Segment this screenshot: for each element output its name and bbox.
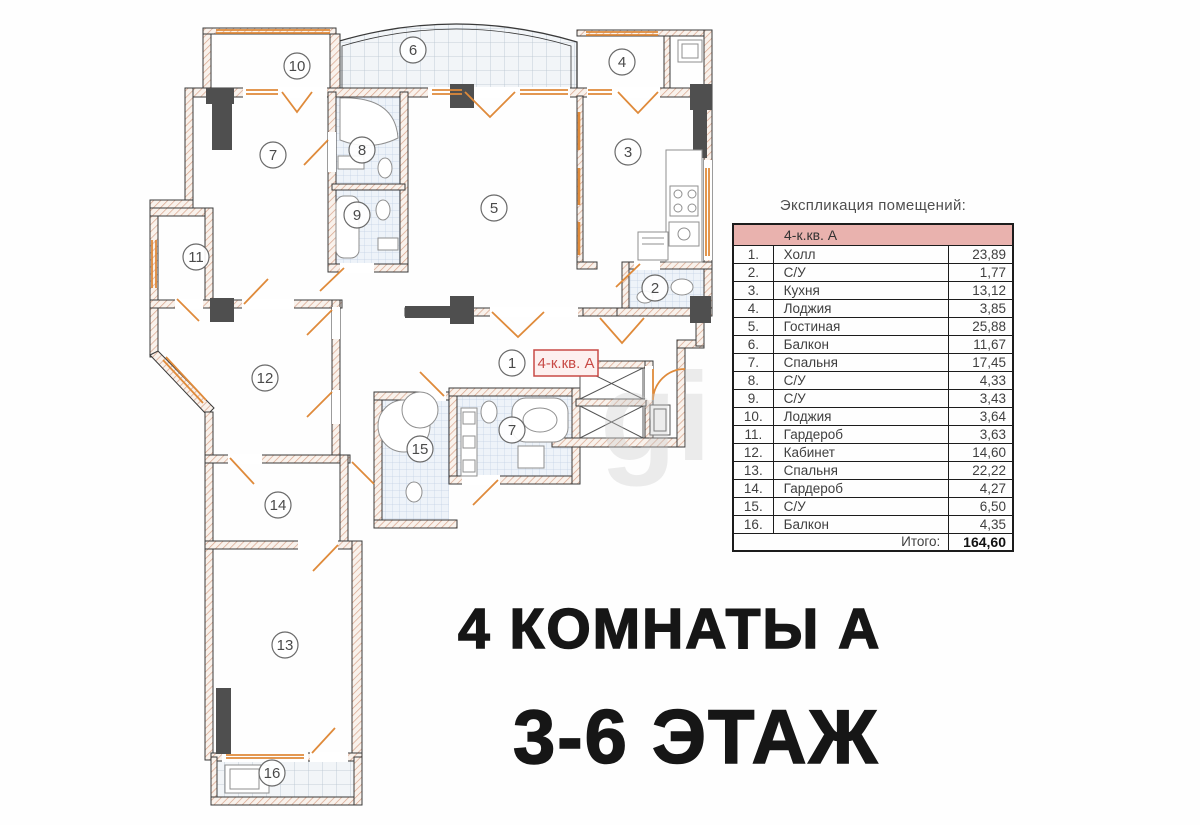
- table-row: 8. С/У 4,33: [733, 371, 1013, 389]
- row-number: 9.: [733, 389, 773, 407]
- floorplan-page: gi 6 10 4 7 8 9 5 3 2 11 12 1 7 15 14 13…: [0, 0, 1200, 825]
- row-area: 25,88: [949, 317, 1013, 335]
- svg-text:12: 12: [257, 370, 274, 387]
- table-row: 16. Балкон 4,35: [733, 515, 1013, 533]
- room-marker-7-bath: 7: [499, 417, 525, 443]
- room-marker-3: 3: [615, 139, 641, 165]
- table-row: 3. Кухня 13,12: [733, 281, 1013, 299]
- row-room-name: Гардероб: [773, 425, 949, 443]
- row-room-name: Балкон: [773, 335, 949, 353]
- svg-text:6: 6: [409, 42, 417, 59]
- table-row: 2. С/У 1,77: [733, 263, 1013, 281]
- row-room-name: Спальня: [773, 353, 949, 371]
- table-row: 7. Спальня 17,45: [733, 353, 1013, 371]
- row-area: 3,64: [949, 407, 1013, 425]
- svg-text:2: 2: [651, 280, 659, 297]
- svg-text:7: 7: [269, 147, 277, 164]
- room-marker-14: 14: [265, 492, 291, 518]
- table-row: 1. Холл 23,89: [733, 245, 1013, 263]
- svg-text:14: 14: [270, 497, 287, 514]
- room-marker-10: 10: [284, 53, 310, 79]
- explication-panel: Экспликация помещений: 4-к.кв. А 1. Холл…: [732, 197, 1014, 552]
- row-room-name: С/У: [773, 497, 949, 515]
- row-number: 11.: [733, 425, 773, 443]
- svg-text:3: 3: [624, 144, 632, 161]
- explication-table: 4-к.кв. А 1. Холл 23,89 2. С/У 1,77 3. К…: [732, 223, 1014, 552]
- row-area: 17,45: [949, 353, 1013, 371]
- row-room-name: С/У: [773, 371, 949, 389]
- total-label: Итого:: [733, 533, 949, 551]
- row-number: 16.: [733, 515, 773, 533]
- room-marker-11: 11: [183, 244, 209, 270]
- row-room-name: Спальня: [773, 461, 949, 479]
- explication-title: Экспликация помещений:: [732, 197, 1014, 214]
- table-header-row: 4-к.кв. А: [733, 224, 1013, 245]
- total-value: 164,60: [949, 533, 1013, 551]
- row-area: 23,89: [949, 245, 1013, 263]
- row-number: 8.: [733, 371, 773, 389]
- explication-body: 1. Холл 23,89 2. С/У 1,77 3. Кухня 13,12…: [733, 245, 1013, 533]
- room-marker-4: 4: [609, 49, 635, 75]
- apartment-label: 4-к.кв. А: [534, 350, 598, 376]
- svg-text:10: 10: [289, 58, 306, 75]
- row-area: 3,63: [949, 425, 1013, 443]
- row-room-name: Холл: [773, 245, 949, 263]
- row-room-name: Кухня: [773, 281, 949, 299]
- row-area: 6,50: [949, 497, 1013, 515]
- row-room-name: Лоджия: [773, 407, 949, 425]
- row-room-name: Лоджия: [773, 299, 949, 317]
- table-row: 12. Кабинет 14,60: [733, 443, 1013, 461]
- svg-text:1: 1: [508, 355, 516, 372]
- watermark-text: gi: [600, 348, 711, 487]
- row-number: 12.: [733, 443, 773, 461]
- room-marker-12: 12: [252, 365, 278, 391]
- row-area: 14,60: [949, 443, 1013, 461]
- room-marker-2: 2: [642, 275, 668, 301]
- svg-text:4: 4: [618, 54, 626, 71]
- row-area: 22,22: [949, 461, 1013, 479]
- row-number: 1.: [733, 245, 773, 263]
- room-marker-1: 1: [499, 350, 525, 376]
- row-room-name: С/У: [773, 389, 949, 407]
- room-marker-5: 5: [481, 195, 507, 221]
- row-area: 3,43: [949, 389, 1013, 407]
- row-room-name: Гардероб: [773, 479, 949, 497]
- row-area: 11,67: [949, 335, 1013, 353]
- table-row: 14. Гардероб 4,27: [733, 479, 1013, 497]
- row-room-name: С/У: [773, 263, 949, 281]
- caption-rooms: 4 КОМНАТЫ А: [458, 596, 881, 662]
- row-number: 13.: [733, 461, 773, 479]
- table-row: 6. Балкон 11,67: [733, 335, 1013, 353]
- room-marker-13: 13: [272, 632, 298, 658]
- table-row: 9. С/У 3,43: [733, 389, 1013, 407]
- utility-fixture: [678, 40, 702, 62]
- svg-text:8: 8: [358, 142, 366, 159]
- row-room-name: Балкон: [773, 515, 949, 533]
- row-number: 15.: [733, 497, 773, 515]
- room-marker-8: 8: [349, 137, 375, 163]
- row-number: 6.: [733, 335, 773, 353]
- row-room-name: Кабинет: [773, 443, 949, 461]
- svg-text:11: 11: [188, 249, 204, 266]
- room-marker-16: 16: [259, 760, 285, 786]
- room-marker-7: 7: [260, 142, 286, 168]
- row-room-name: Гостиная: [773, 317, 949, 335]
- row-number: 10.: [733, 407, 773, 425]
- svg-text:9: 9: [353, 207, 361, 224]
- table-header-apartment: 4-к.кв. А: [733, 224, 1013, 245]
- svg-text:15: 15: [412, 441, 429, 458]
- room-marker-15: 15: [407, 436, 433, 462]
- table-row: 11. Гардероб 3,63: [733, 425, 1013, 443]
- row-number: 7.: [733, 353, 773, 371]
- table-row: 13. Спальня 22,22: [733, 461, 1013, 479]
- table-row: 5. Гостиная 25,88: [733, 317, 1013, 335]
- row-number: 5.: [733, 317, 773, 335]
- table-total-row: Итого: 164,60: [733, 533, 1013, 551]
- row-area: 4,35: [949, 515, 1013, 533]
- row-number: 3.: [733, 281, 773, 299]
- row-area: 13,12: [949, 281, 1013, 299]
- row-number: 2.: [733, 263, 773, 281]
- svg-text:13: 13: [277, 637, 294, 654]
- svg-text:16: 16: [264, 765, 281, 782]
- row-number: 14.: [733, 479, 773, 497]
- table-row: 4. Лоджия 3,85: [733, 299, 1013, 317]
- row-number: 4.: [733, 299, 773, 317]
- table-row: 10. Лоджия 3,64: [733, 407, 1013, 425]
- row-area: 4,27: [949, 479, 1013, 497]
- apartment-label-text: 4-к.кв. А: [538, 355, 595, 372]
- svg-text:7: 7: [508, 422, 516, 439]
- room-marker-6: 6: [400, 37, 426, 63]
- caption-floors: 3-6 ЭТАЖ: [513, 694, 879, 781]
- table-row: 15. С/У 6,50: [733, 497, 1013, 515]
- kitchen-fixtures: [638, 150, 702, 262]
- room-marker-9: 9: [344, 202, 370, 228]
- row-area: 3,85: [949, 299, 1013, 317]
- row-area: 4,33: [949, 371, 1013, 389]
- svg-text:5: 5: [490, 200, 498, 217]
- row-area: 1,77: [949, 263, 1013, 281]
